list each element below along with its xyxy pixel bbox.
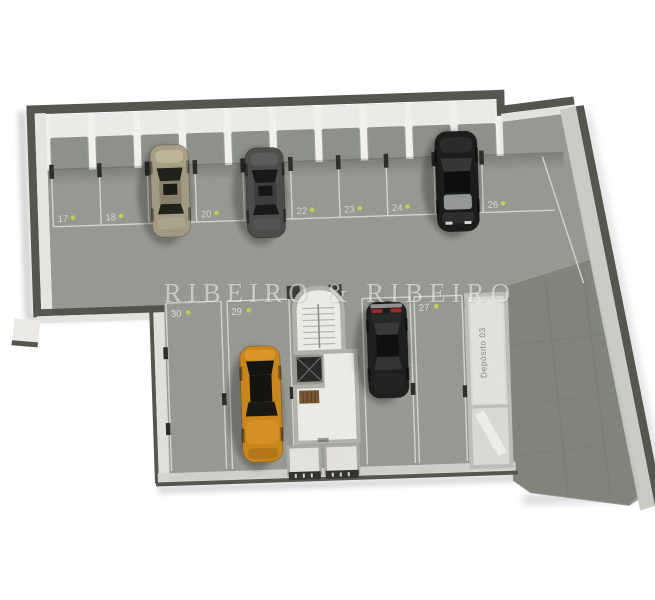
watermark: RIBEIRO & RIBEIRO RIBEIRO & RIBEIRO <box>164 278 518 309</box>
car-hood <box>155 149 183 163</box>
watermark-text: RIBEIRO & RIBEIRO <box>164 278 517 308</box>
car-hood <box>440 137 472 153</box>
building: Depósito 03 17 18 19 20 21 22 23 24 25 2… <box>0 69 655 551</box>
floorplan-svg: Depósito 03 17 18 19 20 21 22 23 24 25 2… <box>0 0 655 600</box>
garage-floorplan-render: Depósito 03 17 18 19 20 21 22 23 24 25 2… <box>0 0 655 600</box>
left-wall-stub <box>11 317 41 343</box>
